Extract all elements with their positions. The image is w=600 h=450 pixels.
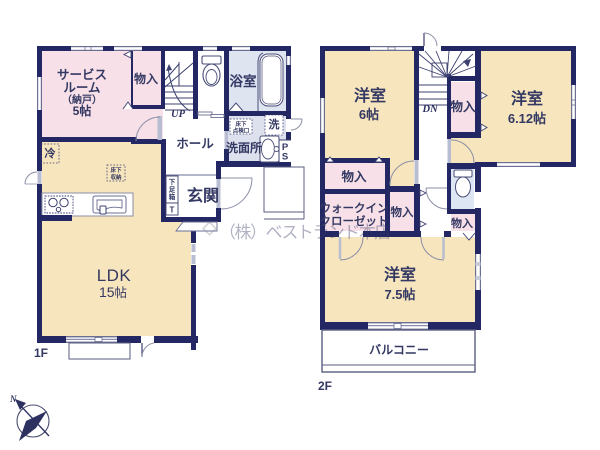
svg-text:6.12帖: 6.12帖 bbox=[508, 111, 546, 126]
svg-text:床下: 床下 bbox=[110, 166, 122, 174]
svg-text:1F: 1F bbox=[34, 346, 48, 360]
svg-text:DN: DN bbox=[422, 104, 439, 115]
svg-text:物入: 物入 bbox=[450, 99, 476, 114]
svg-text:物入: 物入 bbox=[451, 216, 473, 230]
svg-text:ルーム: ルーム bbox=[63, 81, 101, 95]
svg-text:物入: 物入 bbox=[134, 71, 158, 86]
svg-text:洋室: 洋室 bbox=[384, 265, 416, 284]
svg-text:（株）ベストランド本店: （株）ベストランド本店 bbox=[219, 223, 391, 242]
svg-text:洗面所: 洗面所 bbox=[226, 140, 262, 155]
svg-text:2F: 2F bbox=[318, 379, 332, 393]
svg-text:サービス: サービス bbox=[57, 67, 107, 82]
svg-text:7.5帖: 7.5帖 bbox=[384, 287, 415, 302]
svg-text:ウォークイン: ウォークイン bbox=[320, 202, 389, 215]
svg-text:収納: 収納 bbox=[110, 173, 122, 181]
svg-text:LDK: LDK bbox=[97, 266, 132, 285]
svg-text:足: 足 bbox=[169, 186, 176, 194]
svg-text:UP: UP bbox=[171, 109, 186, 120]
svg-text:玄関: 玄関 bbox=[187, 186, 219, 205]
svg-text:N: N bbox=[9, 394, 17, 404]
svg-text:6帖: 6帖 bbox=[359, 107, 379, 122]
svg-text:下: 下 bbox=[169, 178, 176, 186]
svg-text:床下: 床下 bbox=[235, 120, 247, 128]
svg-text:物入: 物入 bbox=[391, 205, 414, 219]
svg-text:バルコニー: バルコニー bbox=[369, 343, 429, 357]
svg-text:物入: 物入 bbox=[341, 169, 367, 184]
svg-text:15帖: 15帖 bbox=[99, 284, 127, 300]
svg-text:洋室: 洋室 bbox=[511, 89, 543, 108]
svg-text:箱: 箱 bbox=[169, 192, 176, 201]
svg-text:冷: 冷 bbox=[45, 146, 56, 160]
svg-text:洗: 洗 bbox=[269, 117, 280, 131]
svg-text:洋室: 洋室 bbox=[354, 86, 386, 105]
svg-text:S: S bbox=[282, 152, 288, 163]
svg-text:5帖: 5帖 bbox=[73, 103, 92, 118]
svg-text:点検口: 点検口 bbox=[233, 127, 250, 135]
svg-text:T: T bbox=[170, 206, 175, 215]
svg-text:浴室: 浴室 bbox=[230, 73, 257, 89]
svg-text:ホール: ホール bbox=[176, 137, 214, 151]
